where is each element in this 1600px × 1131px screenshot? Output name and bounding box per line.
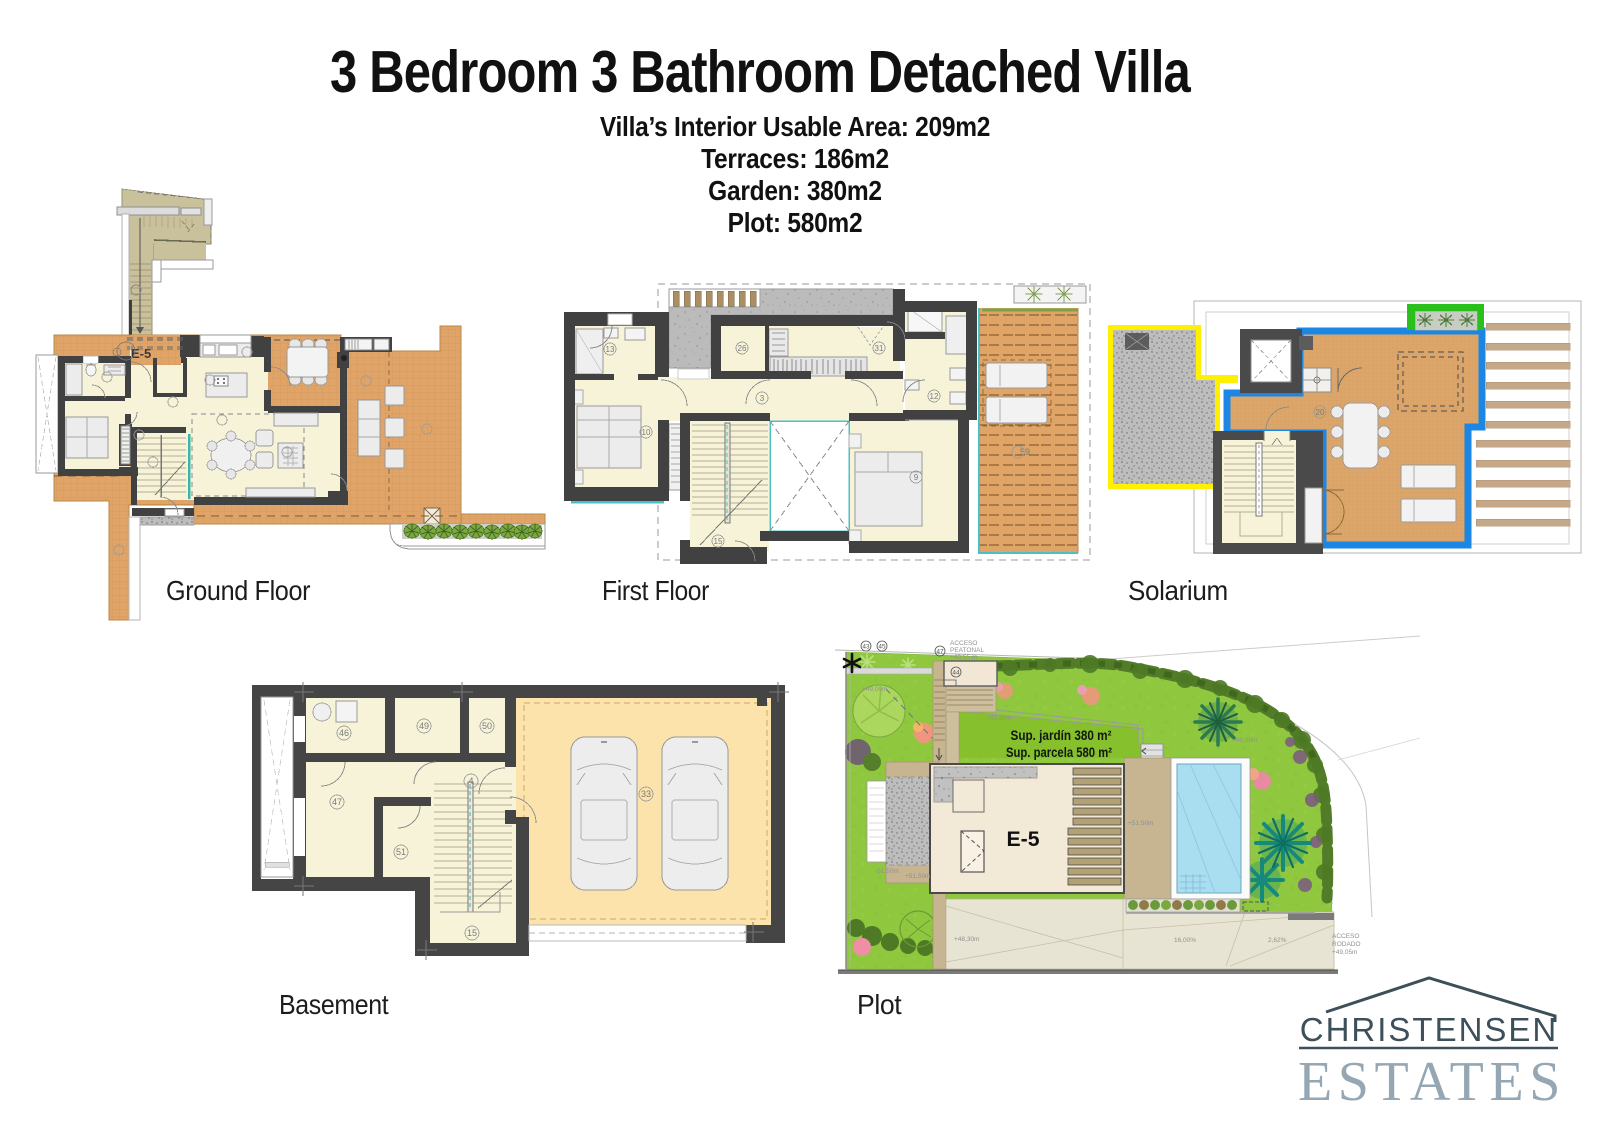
svg-text:RODADO: RODADO: [1332, 941, 1361, 948]
svg-text:2,62%: 2,62%: [1268, 937, 1287, 944]
svg-text:49: 49: [419, 721, 429, 731]
svg-text:59: 59: [1020, 447, 1030, 457]
svg-text:+51,50m: +51,50m: [1128, 820, 1153, 827]
svg-text:+49,00m: +49,00m: [862, 686, 887, 693]
svg-text:31: 31: [875, 344, 884, 353]
svg-text:ESTATES: ESTATES: [1298, 1051, 1566, 1113]
svg-text:45: 45: [878, 644, 886, 651]
svg-text:43: 43: [862, 644, 870, 651]
svg-text:15: 15: [714, 537, 723, 546]
svg-text:47: 47: [936, 649, 944, 656]
svg-text:+40,55 m: +40,55 m: [950, 654, 977, 661]
svg-text:44: 44: [952, 670, 960, 677]
svg-text:+51,50m: +51,50m: [905, 873, 930, 880]
svg-text:ACCESO: ACCESO: [950, 640, 977, 647]
svg-text:47: 47: [332, 797, 342, 807]
svg-text:+50,30m: +50,30m: [986, 715, 1011, 722]
svg-text:15: 15: [467, 928, 477, 938]
svg-text:13: 13: [606, 345, 615, 354]
svg-text:20: 20: [1316, 408, 1325, 417]
svg-text:26: 26: [738, 344, 747, 353]
svg-text:+49,50m: +49,50m: [1232, 737, 1257, 744]
svg-text:3: 3: [760, 394, 765, 403]
svg-text:ACCESO: ACCESO: [1332, 933, 1359, 940]
svg-text:+48,30m: +48,30m: [954, 936, 979, 943]
svg-text:33: 33: [641, 789, 651, 799]
svg-text:16,00%: 16,00%: [1174, 937, 1196, 944]
svg-text:Sup. jardín 380 m²: Sup. jardín 380 m²: [1011, 727, 1112, 743]
svg-text:10: 10: [642, 428, 651, 437]
svg-text:4: 4: [468, 776, 473, 786]
svg-text:-51,50m: -51,50m: [875, 868, 899, 875]
svg-text:E-5: E-5: [1007, 828, 1040, 851]
svg-text:CHRISTENSEN: CHRISTENSEN: [1300, 1011, 1559, 1048]
svg-text:Sup. parcela 580 m²: Sup. parcela 580 m²: [1006, 744, 1112, 760]
svg-text:PEATONAL: PEATONAL: [950, 647, 984, 654]
svg-text:12: 12: [930, 392, 939, 401]
svg-text:46: 46: [339, 728, 349, 738]
svg-text:50: 50: [482, 721, 492, 731]
svg-text:9: 9: [914, 473, 919, 482]
svg-text:+49,05m: +49,05m: [1332, 949, 1357, 956]
svg-text:51: 51: [396, 847, 406, 857]
